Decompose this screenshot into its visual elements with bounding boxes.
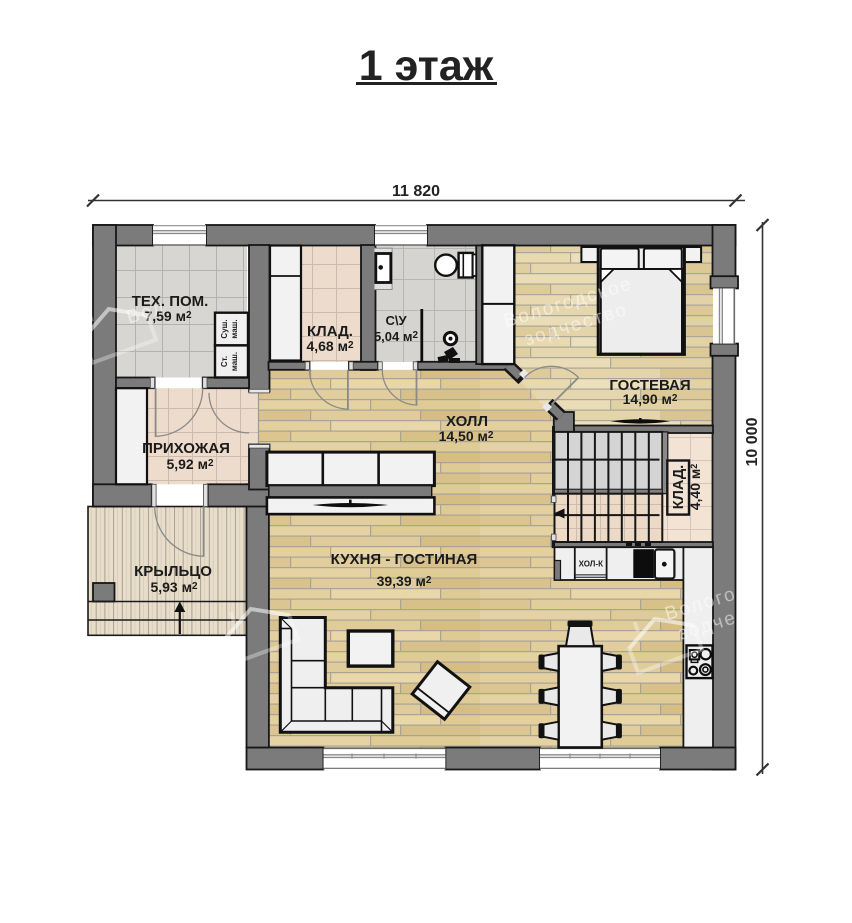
svg-text:5,04 м2: 5,04 м2 bbox=[374, 329, 419, 344]
svg-text:5,93 м2: 5,93 м2 bbox=[150, 579, 198, 595]
svg-text:14,90 м2: 14,90 м2 bbox=[623, 391, 678, 407]
svg-text:КРЫЛЬЦО: КРЫЛЬЦО bbox=[134, 563, 212, 580]
svg-text:маш.: маш. bbox=[230, 319, 239, 338]
svg-text:5,92 м2: 5,92 м2 bbox=[166, 456, 214, 472]
svg-text:11 820: 11 820 bbox=[392, 183, 440, 200]
svg-text:маш.: маш. bbox=[230, 352, 239, 371]
svg-text:4,68 м2: 4,68 м2 bbox=[306, 338, 354, 354]
svg-text:ХОЛ-К: ХОЛ-К bbox=[579, 560, 603, 569]
svg-text:39,39 м2: 39,39 м2 bbox=[377, 573, 432, 589]
svg-text:ПРИХОЖАЯ: ПРИХОЖАЯ bbox=[142, 440, 230, 457]
svg-text:14,50 м2: 14,50 м2 bbox=[439, 428, 494, 444]
svg-text:КУХНЯ - ГОСТИНАЯ: КУХНЯ - ГОСТИНАЯ bbox=[331, 551, 478, 568]
svg-text:Ст.: Ст. bbox=[220, 356, 229, 367]
svg-text:КЛАД.: КЛАД. bbox=[671, 465, 687, 509]
svg-text:С\У: С\У bbox=[385, 313, 407, 328]
svg-text:4,40 м2: 4,40 м2 bbox=[687, 464, 703, 511]
svg-text:Суш.: Суш. bbox=[220, 319, 229, 338]
svg-text:10 000: 10 000 bbox=[744, 417, 761, 466]
